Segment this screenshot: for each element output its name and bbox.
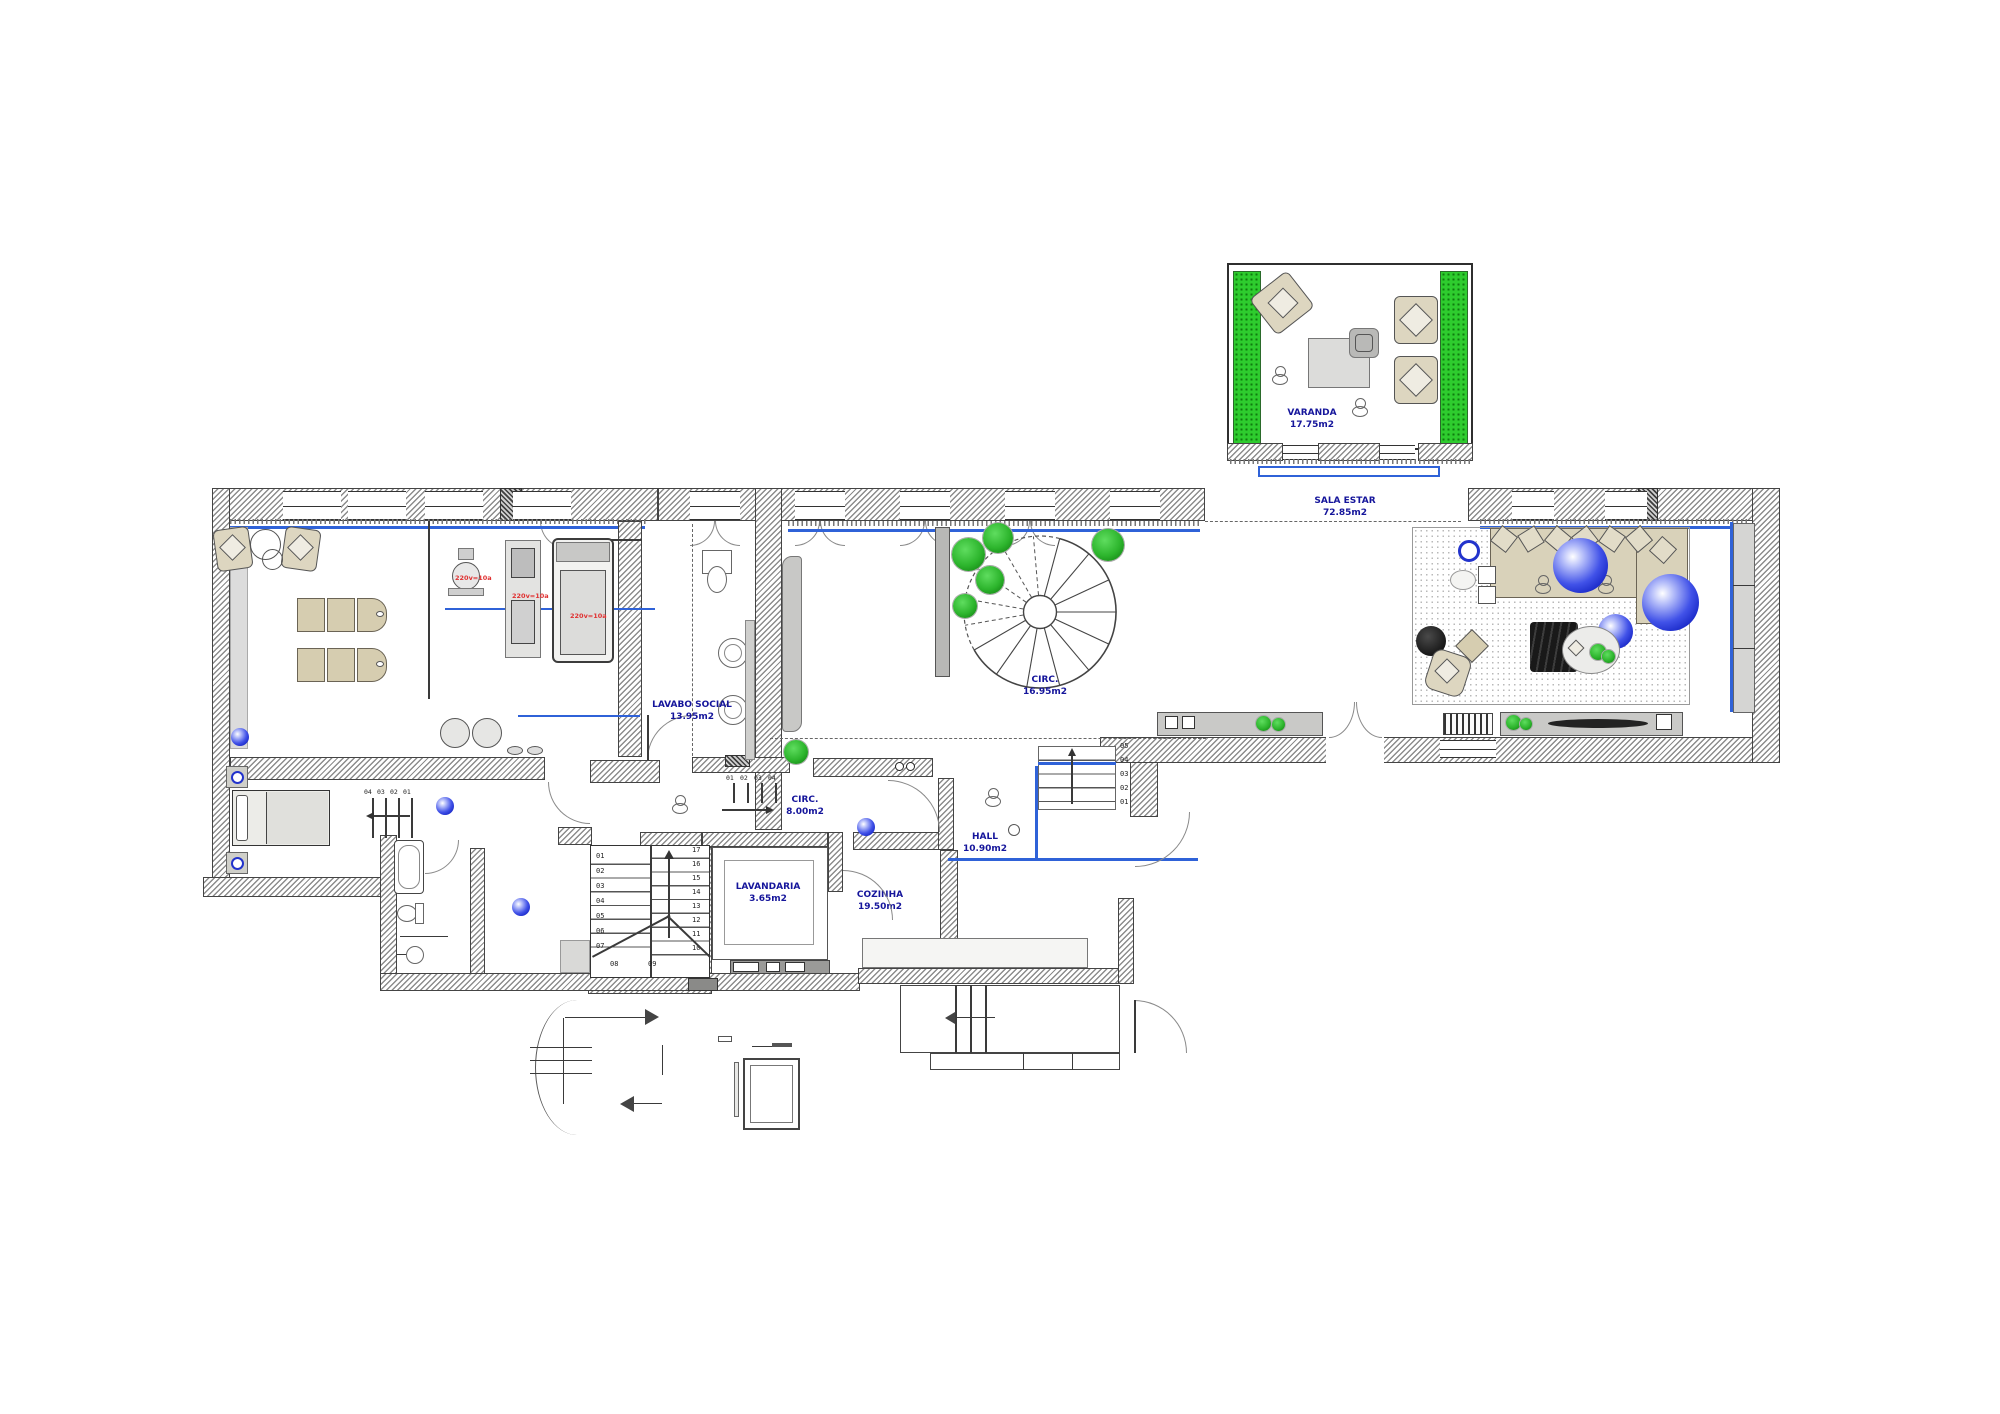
appliance-box <box>733 962 759 972</box>
toilet-bowl <box>707 566 727 593</box>
bench <box>718 1036 732 1042</box>
plant-bush <box>1602 650 1615 663</box>
step-number-text: 04 <box>768 774 776 782</box>
gym-machine-inner2 <box>511 600 535 644</box>
hall-step-blue-line <box>1038 762 1116 765</box>
window <box>690 491 740 520</box>
window-casement-arc <box>690 521 715 546</box>
step-number: 02 <box>740 774 748 782</box>
wall-hall-bottom-vertical <box>1118 898 1134 984</box>
stair-number-text: 09 <box>648 960 656 968</box>
room-area: 13.95m2 <box>652 712 732 724</box>
insulation-line <box>1480 519 1750 524</box>
fireplace-feature <box>782 556 802 732</box>
step-number: 03 <box>754 774 762 782</box>
weight-plate <box>507 746 523 755</box>
stair-number-text: 14 <box>692 888 700 896</box>
step-number: 05 <box>1120 742 1128 750</box>
exterior-curb <box>930 1053 1120 1070</box>
blue-sphere <box>857 818 875 836</box>
person-figure <box>985 788 1001 808</box>
room-name: HALL <box>963 832 1007 844</box>
toilet-bowl <box>397 905 417 922</box>
direction-arrow-head-left <box>620 1096 634 1112</box>
wall-right <box>1752 488 1780 763</box>
double-door-arc <box>1329 702 1355 738</box>
window <box>795 491 845 520</box>
exterior-step <box>530 1073 592 1074</box>
stair-number-text: 11 <box>692 930 700 938</box>
step-number-text: 01 <box>403 788 411 796</box>
plant-bush <box>983 523 1013 553</box>
floor-plan-canvas: VARANDA 17.75m2 220v=10a 220v=10a 220v=1… <box>0 0 2000 1414</box>
exercise-bike <box>458 548 474 560</box>
sala-bottom-window <box>1440 740 1496 758</box>
door-leaf-lavabo <box>647 715 649 760</box>
step-line <box>385 798 387 838</box>
stair-side-landing <box>560 940 590 973</box>
massage-table <box>327 648 355 682</box>
nightstand-lamp <box>231 857 244 870</box>
direction-arrow-head-left <box>366 812 374 820</box>
door-arc-exterior <box>1134 1000 1187 1053</box>
wall-kitchen-divider <box>828 832 843 892</box>
person-figure <box>1352 398 1368 418</box>
washbasin-inner <box>724 644 742 662</box>
direction-arrow-shaft <box>565 1017 645 1018</box>
step-number: 01 <box>726 774 734 782</box>
exercise-bike-base <box>448 588 484 596</box>
stair-number: 15 <box>692 874 700 882</box>
step-number-text: 01 <box>726 774 734 782</box>
stair-number: 12 <box>692 916 700 924</box>
console-box <box>1182 716 1195 729</box>
step-line <box>733 783 735 803</box>
exterior-furniture-inner <box>750 1065 793 1123</box>
wall-gym-bottom <box>230 757 545 780</box>
equipment-power-text: 220v=10a <box>455 574 492 582</box>
side-table <box>1478 566 1496 584</box>
step-line <box>775 783 777 803</box>
massage-headrest <box>376 661 384 667</box>
room-area: 3.65m2 <box>736 894 801 906</box>
step-line <box>747 783 749 803</box>
stair-number-text: 04 <box>596 897 604 905</box>
equipment-power-text: 220v=10a <box>570 612 607 620</box>
wall-stair-top <box>558 827 592 845</box>
cooktop-ring <box>906 762 915 771</box>
bed-blanket <box>266 792 328 844</box>
stair-number: 01 <box>596 852 604 860</box>
stair-number: 06 <box>596 927 604 935</box>
window <box>1512 491 1554 520</box>
direction-arrow-head-left <box>945 1012 955 1024</box>
direction-arrow-shaft <box>722 809 766 811</box>
hall-arrow-head-up <box>1068 748 1076 756</box>
direction-arrow-head-right <box>645 1009 659 1025</box>
stair-number: 09 <box>648 960 656 968</box>
step-line <box>411 798 413 838</box>
wall-gym-bottom-b <box>590 760 660 783</box>
bathroom-sink <box>406 946 424 964</box>
toilet-cistern <box>415 903 424 924</box>
person-figure <box>1535 575 1551 595</box>
exterior-step <box>530 1047 592 1048</box>
step-number: 01 <box>1120 798 1128 806</box>
hall-steps <box>1039 747 1115 809</box>
step-number-text: 03 <box>377 788 385 796</box>
stair-number: 16 <box>692 860 700 868</box>
blue-sphere <box>231 728 249 746</box>
curb-tick <box>1072 1053 1073 1070</box>
kitchen-counter-outline <box>862 938 1088 968</box>
bed-pillow <box>236 795 248 841</box>
door-arc-corridor-hall <box>888 780 940 832</box>
step-number: 04 <box>768 774 776 782</box>
plant-bush <box>1256 716 1271 731</box>
tv-console-object <box>1548 719 1648 728</box>
step-number-text: 01 <box>1120 798 1128 806</box>
varanda-table-top <box>1355 334 1373 352</box>
step-number: 02 <box>1120 784 1128 792</box>
window <box>513 491 571 520</box>
blue-ring-stool <box>1458 540 1480 562</box>
stair-number: 03 <box>596 882 604 890</box>
treadmill-console <box>556 542 610 562</box>
window-casement-arc <box>715 521 740 546</box>
wall-hall-bottom <box>858 968 1120 984</box>
blue-sphere <box>436 797 454 815</box>
step-number-text: 05 <box>1120 742 1128 750</box>
room-label-hall: HALL 10.90m2 <box>963 832 1007 855</box>
step-line <box>761 783 763 803</box>
step-number: 01 <box>403 788 411 796</box>
stair-number-text: 15 <box>692 874 700 882</box>
utility-box <box>688 978 718 991</box>
wall-bedroom-bottom <box>203 877 383 897</box>
door-arc-kitchen <box>843 870 893 920</box>
step-number: 03 <box>377 788 385 796</box>
room-name: LAVABO SOCIAL <box>652 700 732 712</box>
massage-table <box>297 648 325 682</box>
wall-bath-right <box>470 848 485 975</box>
step-number-text: 04 <box>1120 756 1128 764</box>
sheepskin-rug <box>1450 570 1476 590</box>
window <box>1110 491 1160 520</box>
curb-tick <box>1023 1053 1024 1070</box>
room-name: SALA ESTAR <box>1314 496 1375 508</box>
exercise-ball <box>472 718 502 748</box>
vanity-counter <box>745 620 755 760</box>
step-number-text: 03 <box>1120 770 1128 778</box>
equipment-power-label: 220v=10a <box>455 574 492 582</box>
varanda-window <box>1380 445 1415 460</box>
bookshelf <box>1443 713 1493 735</box>
massage-table <box>297 598 325 632</box>
massage-table <box>327 598 355 632</box>
varanda-window <box>1283 445 1318 460</box>
stair-number-text: 13 <box>692 902 700 910</box>
stair-number-text: 17 <box>692 846 700 854</box>
appliance-box <box>766 962 780 972</box>
side-table <box>1478 586 1496 604</box>
kitchen-top-counter <box>813 758 933 777</box>
exterior-step-line <box>970 985 972 1053</box>
step-number: 04 <box>1120 756 1128 764</box>
plant-bush <box>953 594 977 618</box>
step-number: 04 <box>364 788 372 796</box>
cooktop-ring <box>895 762 904 771</box>
door-leaf <box>1134 1000 1136 1053</box>
step-line <box>398 798 400 838</box>
console-box <box>1165 716 1178 729</box>
room-label-varanda: VARANDA 17.75m2 <box>1287 408 1336 431</box>
room-area: 8.00m2 <box>786 807 824 819</box>
insulation-line <box>230 519 648 524</box>
plant-bush <box>1272 718 1285 731</box>
weight-plate <box>527 746 543 755</box>
plant-bush <box>1520 718 1532 730</box>
room-label-lavabo: LAVABO SOCIAL 13.95m2 <box>652 700 732 723</box>
window <box>348 491 406 520</box>
varanda-hedge-right <box>1440 271 1468 445</box>
room-name: VARANDA <box>1287 408 1336 420</box>
room-name: CIRC. <box>786 795 824 807</box>
step-number: 02 <box>390 788 398 796</box>
stair-number-text: 01 <box>596 852 604 860</box>
exterior-step <box>530 1060 592 1061</box>
room-name: LAVANDARIA <box>736 882 801 894</box>
room-area: 72.85m2 <box>1314 508 1375 520</box>
plant-bush <box>1092 529 1124 561</box>
direction-arrow-shaft <box>955 1017 995 1018</box>
room-label-sala-estar: SALA ESTAR 72.85m2 <box>1314 496 1375 519</box>
blue-sphere-large <box>1553 538 1608 593</box>
plant-bush <box>976 566 1004 594</box>
stair-center-divider <box>650 845 652 978</box>
nightstand-lamp <box>231 771 244 784</box>
hall-arrow-shaft <box>1071 756 1073 804</box>
exterior-landing <box>900 985 1120 1053</box>
room-area: 17.75m2 <box>1287 420 1336 432</box>
double-door-arc <box>1356 702 1382 738</box>
step-number: 03 <box>1120 770 1128 778</box>
console-line-dark <box>772 1043 792 1047</box>
exterior-step-line <box>955 985 957 1053</box>
person-figure <box>1272 366 1288 386</box>
plant-bush <box>784 740 808 764</box>
wall-gym-lavabo-divider <box>618 521 642 757</box>
window <box>900 491 950 520</box>
blue-sphere-large <box>1642 574 1699 631</box>
direction-arrow-shaft <box>374 815 410 817</box>
door-arc-bathroom <box>425 840 459 874</box>
insulation-line <box>1230 459 1473 464</box>
stair-number-text: 02 <box>596 867 604 875</box>
closet-divider <box>1733 585 1755 586</box>
room-name: CIRC. <box>1023 675 1067 687</box>
step-number-text: 03 <box>754 774 762 782</box>
step-number-text: 02 <box>390 788 398 796</box>
structural-pillar <box>935 527 950 677</box>
wall-lavandaria-top <box>702 832 828 847</box>
plant-bush <box>1506 715 1521 730</box>
bathroom-shelf-line <box>400 936 448 937</box>
stair-number-text: 12 <box>692 916 700 924</box>
window <box>1605 491 1647 520</box>
stair-number-text: 06 <box>596 927 604 935</box>
direction-arrow-shaft <box>634 1103 662 1104</box>
hall-floor-circle <box>1008 824 1020 836</box>
stair-number: 11 <box>692 930 700 938</box>
sala-boundary-line <box>1205 521 1461 522</box>
room-label-circ-spiral: CIRC. 16.95m2 <box>1023 675 1067 698</box>
stair-number: 08 <box>610 960 618 968</box>
plant-bush <box>952 538 985 571</box>
blue-sphere <box>512 898 530 916</box>
stair-arrow-head-up <box>664 850 674 859</box>
equipment-power-label: 220v=10a <box>570 612 607 620</box>
stair-number: 05 <box>596 912 604 920</box>
gym-machine-inner <box>511 548 535 578</box>
curved-wall <box>535 1000 605 1135</box>
appliance-box <box>785 962 805 972</box>
closet-divider <box>1733 648 1755 649</box>
exterior-strip <box>734 1062 739 1117</box>
step-number-text: 02 <box>740 774 748 782</box>
gym-blue-line-2 <box>518 715 640 717</box>
person-figure <box>672 795 688 815</box>
closet-strip <box>1733 523 1755 713</box>
bathtub-inner <box>398 845 420 889</box>
stair-arrow-shaft <box>668 858 670 938</box>
open-boundary-line <box>770 738 1206 739</box>
stair-number-text: 08 <box>610 960 618 968</box>
stair-number-text: 05 <box>596 912 604 920</box>
step-number-text: 04 <box>364 788 372 796</box>
equipment-power-text: 220v=10a <box>512 592 549 600</box>
gym-blue-line-1 <box>445 608 655 610</box>
step-number-text: 02 <box>1120 784 1128 792</box>
sink-stem <box>396 954 406 955</box>
direction-arrow-head-right <box>766 806 774 814</box>
window <box>283 491 341 520</box>
lounge-round-table-small <box>262 549 283 570</box>
room-label-lavandaria: LAVANDARIA 3.65m2 <box>736 882 801 905</box>
stair-number: 04 <box>596 897 604 905</box>
room-label-circ-lower: CIRC. 8.00m2 <box>786 795 824 818</box>
massage-headrest <box>376 611 384 617</box>
double-door-gap <box>1326 737 1384 763</box>
stair-number: 14 <box>692 888 700 896</box>
window <box>425 491 483 520</box>
equipment-power-label: 220v=10a <box>512 592 549 600</box>
hall-boundary-line-v <box>1035 766 1038 860</box>
stair-number-text: 16 <box>692 860 700 868</box>
door-arc-gym <box>548 782 590 824</box>
console-box <box>1656 714 1672 730</box>
room-area: 10.90m2 <box>963 844 1007 856</box>
stair-number: 13 <box>692 902 700 910</box>
stair-number: 17 <box>692 846 700 854</box>
stair-number-text: 03 <box>596 882 604 890</box>
wall-hall-stub <box>938 778 954 850</box>
exterior-step-line <box>985 985 987 1053</box>
gym-divider-line <box>428 521 430 699</box>
room-area: 16.95m2 <box>1023 687 1067 699</box>
window <box>1005 491 1055 520</box>
sliding-glass-door <box>1258 466 1440 477</box>
stair-number: 02 <box>596 867 604 875</box>
exterior-step-edge <box>662 1045 663 1075</box>
exercise-ball <box>440 718 470 748</box>
